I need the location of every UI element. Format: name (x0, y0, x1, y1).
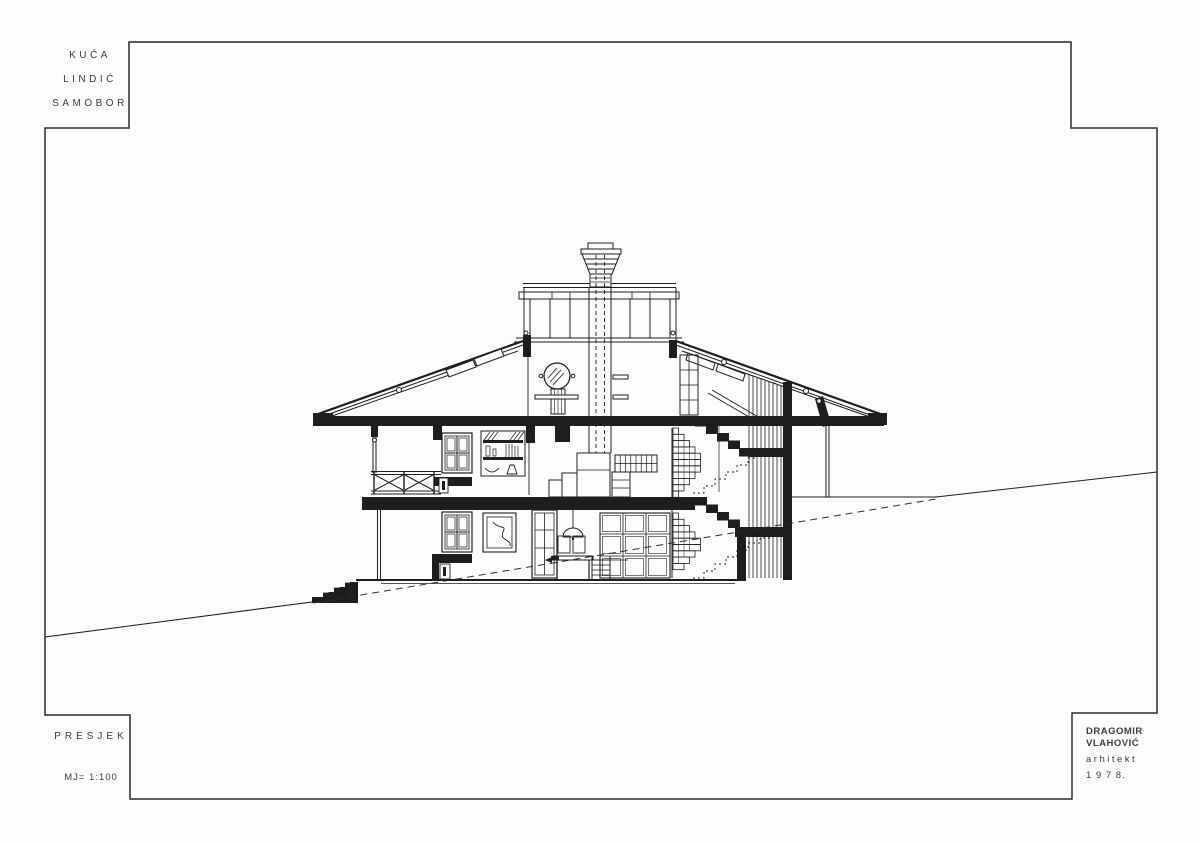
right-cut-wall (783, 382, 792, 580)
project-name-line: SAMOBOR (48, 98, 132, 109)
floor-slabs (313, 416, 884, 510)
chair (573, 536, 585, 553)
right-porch-post (815, 396, 831, 497)
drawing-year: 1 9 7 8. (1086, 770, 1156, 781)
bookshelf (481, 431, 525, 476)
drawing-title: PRESJEK (48, 731, 134, 742)
picture-frame (483, 513, 516, 552)
section-drawing (0, 0, 1200, 844)
storage-grid (615, 455, 657, 472)
upper-window (442, 433, 472, 473)
ground-floor-line (356, 510, 737, 584)
architect-profession: arhitekt (1086, 754, 1156, 765)
lower-window (442, 512, 472, 552)
chair (558, 536, 570, 553)
lower-window-sill (432, 554, 472, 563)
stair-wall (737, 536, 746, 581)
roof-left (313, 341, 523, 426)
architect-name-line: VLAHOVIĆ (1086, 738, 1156, 750)
stair-climb-line-upper (693, 458, 757, 493)
brick-corbel-upper (673, 428, 701, 497)
attic-interior (528, 355, 698, 416)
stair-climb-line-lower (693, 538, 770, 578)
drawing-title-block: PRESJEK MJ= 1:100 (48, 731, 134, 783)
loft-drawers (612, 472, 630, 497)
plank-siding-wall (749, 375, 781, 578)
project-title-block: KUĆA LINDIĆ SAMOBOR (48, 50, 132, 122)
round-window (539, 363, 575, 389)
attic-glazed-door (680, 355, 698, 415)
stair-lower-flight (695, 497, 783, 537)
exterior-entry-steps (312, 582, 358, 603)
project-name-line: KUĆA (48, 50, 132, 61)
drawing-scale: MJ= 1:100 (48, 772, 134, 783)
upper-floor-interior (371, 426, 701, 497)
towel-bar-upper (613, 375, 628, 379)
balcony-x-railing (371, 471, 441, 494)
porch-post (371, 426, 378, 473)
architect-title-block: DRAGOMIR VLAHOVIĆ arhitekt 1 9 7 8. (1086, 726, 1156, 781)
roof-skylights-left (446, 349, 504, 377)
brick-corbel-lower (673, 513, 701, 570)
project-name-line: LINDIĆ (48, 74, 132, 85)
drawing-sheet: KUĆA LINDIĆ SAMOBOR PRESJEK MJ= 1:100 DR… (0, 0, 1200, 844)
lower-handle-plate (440, 564, 450, 579)
loft-boxes (549, 453, 610, 497)
original-grade-dashed-line (313, 499, 936, 603)
washstand (535, 389, 578, 414)
roof-monitor (514, 284, 684, 359)
architect-name-line: DRAGOMIR (1086, 726, 1156, 738)
towel-bar-lower (613, 395, 628, 399)
glazed-door (532, 510, 559, 578)
upper-handle-plate (439, 478, 448, 493)
